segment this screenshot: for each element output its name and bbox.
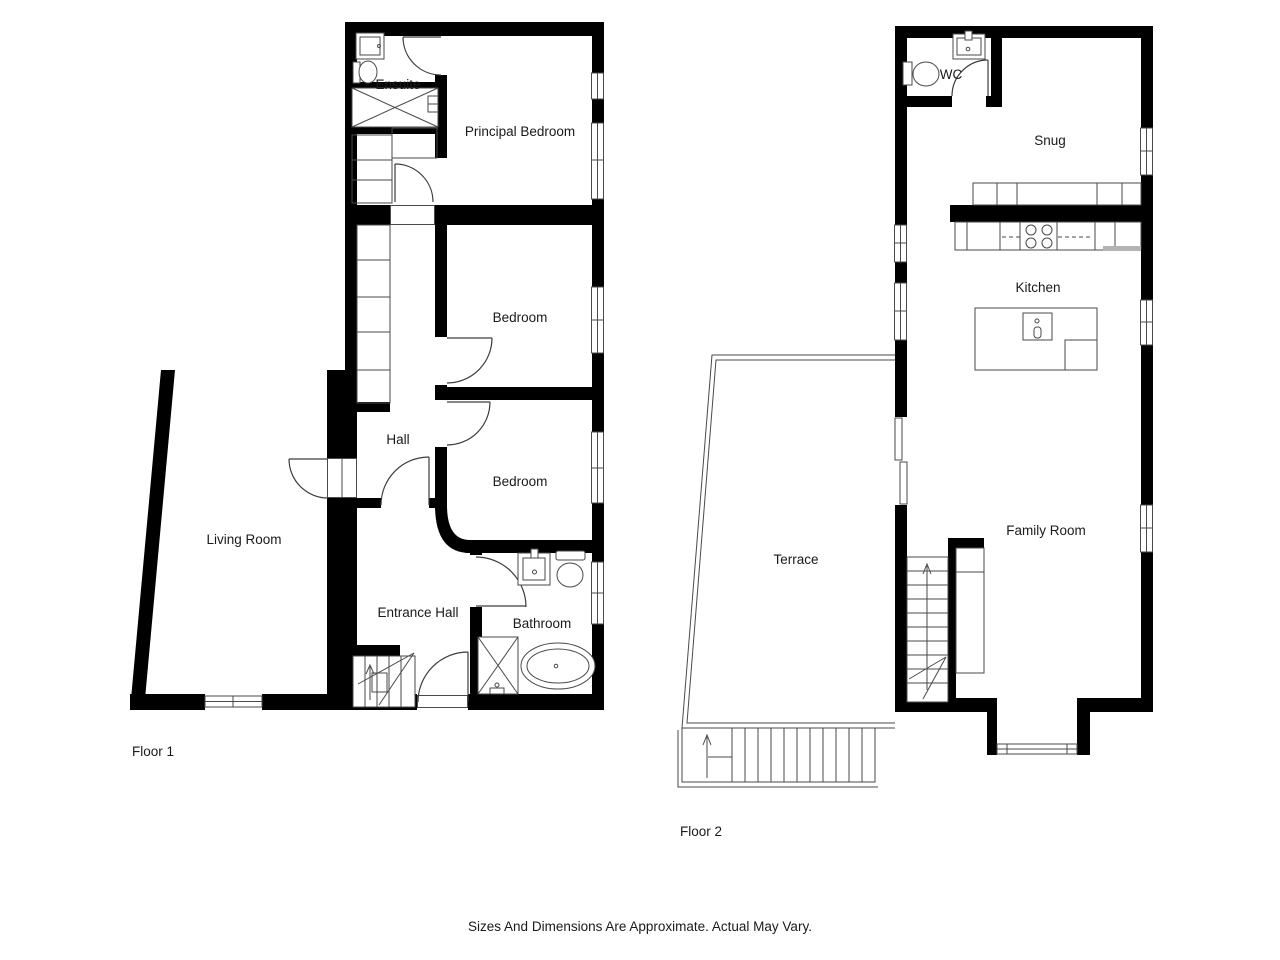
label-terrace: Terrace bbox=[773, 552, 818, 567]
disclaimer-text: Sizes And Dimensions Are Approximate. Ac… bbox=[468, 919, 812, 934]
floor1-staircase bbox=[353, 653, 415, 707]
floor2-wall-openings bbox=[894, 95, 1154, 552]
wc-toilet-fixture bbox=[903, 62, 939, 86]
door-living-room bbox=[289, 459, 328, 498]
kitchen-island bbox=[975, 308, 1097, 370]
label-living-room: Living Room bbox=[206, 532, 281, 547]
label-bedroom-middle: Bedroom bbox=[493, 310, 548, 325]
bathtub-fixture bbox=[521, 643, 595, 689]
floor-plan-svg: Ensuite Principal Bedroom Bedroom Hall B… bbox=[0, 0, 1280, 960]
room-snug-area bbox=[907, 38, 1141, 205]
wc-sink-fixture bbox=[953, 31, 985, 59]
shower-fixture bbox=[478, 637, 518, 694]
room-bedroom-middle-area bbox=[447, 225, 592, 387]
hob-stove-fixture bbox=[1020, 222, 1057, 250]
label-kitchen: Kitchen bbox=[1015, 280, 1060, 295]
window-bedroom-lower bbox=[592, 432, 604, 503]
door-bedroom-lower bbox=[447, 402, 490, 445]
floor2-plan: WC Snug Kitchen Terrace Family Room Floo… bbox=[678, 26, 1154, 839]
label-wc: WC bbox=[940, 67, 963, 82]
label-principal-bedroom: Principal Bedroom bbox=[465, 124, 575, 139]
label-bathroom: Bathroom bbox=[513, 616, 572, 631]
label-entrance-hall: Entrance Hall bbox=[377, 605, 458, 620]
window-bathroom bbox=[592, 562, 604, 624]
label-snug: Snug bbox=[1034, 133, 1066, 148]
kitchen-counter bbox=[955, 222, 1141, 251]
label-bedroom-lower: Bedroom bbox=[493, 474, 548, 489]
floor1-curved-wall-corner bbox=[435, 505, 470, 553]
stair-closet bbox=[956, 548, 984, 673]
bathroom-toilet-fixture bbox=[556, 551, 585, 587]
window-kitchen-left-upper bbox=[895, 225, 907, 262]
label-floor2: Floor 2 bbox=[680, 824, 722, 839]
label-ensuite: Ensuite bbox=[375, 77, 420, 92]
door-principal-bedroom bbox=[395, 164, 433, 202]
linen-cupboard-fixture bbox=[352, 88, 438, 127]
window-family-room bbox=[1141, 505, 1153, 552]
door-bedroom-middle bbox=[447, 338, 492, 383]
window-kitchen-right bbox=[1141, 300, 1153, 345]
terrace-outline bbox=[682, 355, 895, 728]
window-kitchen-left-lower bbox=[895, 283, 907, 340]
terrace-steps bbox=[678, 728, 878, 787]
hall-wardrobes bbox=[357, 225, 390, 403]
window-principal-bedroom-large bbox=[592, 123, 604, 199]
room-bedroom-lower-area bbox=[447, 400, 592, 540]
ensuite-toilet-fixture bbox=[353, 61, 377, 83]
ensuite-sink-fixture bbox=[356, 33, 384, 59]
room-terrace-area bbox=[690, 355, 895, 728]
room-principal-bedroom-area bbox=[447, 36, 592, 205]
label-floor1: Floor 1 bbox=[132, 744, 174, 759]
window-living-room bbox=[205, 696, 262, 707]
snug-counter bbox=[973, 183, 1141, 205]
floor2-staircase bbox=[907, 557, 948, 702]
label-family-room: Family Room bbox=[1006, 523, 1086, 538]
floor-plan-canvas: Ensuite Principal Bedroom Bedroom Hall B… bbox=[0, 0, 1280, 960]
label-hall: Hall bbox=[386, 432, 409, 447]
bathroom-sink-fixture bbox=[518, 549, 550, 585]
window-principal-bedroom-small bbox=[592, 73, 604, 99]
room-kitchen-area bbox=[907, 222, 1141, 452]
window-bedroom-middle bbox=[592, 287, 604, 353]
window-snug bbox=[1141, 128, 1153, 175]
floor1-plan: Ensuite Principal Bedroom Bedroom Hall B… bbox=[130, 22, 605, 759]
family-room-bay-window bbox=[997, 744, 1077, 754]
